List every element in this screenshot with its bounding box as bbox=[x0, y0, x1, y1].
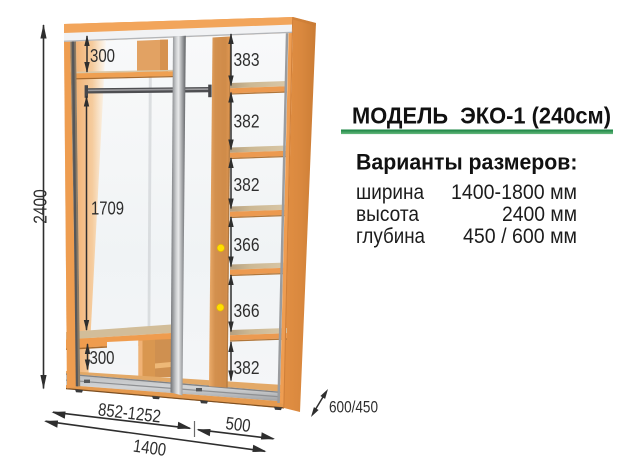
svg-text:600/450: 600/450 bbox=[329, 397, 378, 416]
svg-text:1400-1800 мм: 1400-1800 мм bbox=[451, 181, 577, 204]
svg-text:450 / 600 мм: 450 / 600 мм bbox=[463, 225, 577, 248]
svg-text:366: 366 bbox=[234, 301, 260, 321]
svg-text:ширина: ширина bbox=[356, 181, 424, 204]
svg-text:852-1252: 852-1252 bbox=[97, 399, 162, 426]
svg-text:высота: высота bbox=[356, 203, 419, 226]
svg-text:382: 382 bbox=[234, 112, 260, 132]
svg-text:2400: 2400 bbox=[31, 189, 51, 224]
svg-text:глубина: глубина bbox=[356, 225, 425, 248]
svg-text:500: 500 bbox=[225, 413, 252, 436]
svg-text:382: 382 bbox=[234, 358, 260, 378]
svg-text:МОДЕЛЬ ЭКО-1 (240см): МОДЕЛЬ ЭКО-1 (240см) bbox=[352, 103, 611, 129]
svg-text:2400 мм: 2400 мм bbox=[502, 203, 577, 226]
svg-text:382: 382 bbox=[234, 175, 260, 195]
svg-text:383: 383 bbox=[234, 50, 260, 70]
svg-text:Варианты размеров:: Варианты размеров: bbox=[356, 150, 578, 175]
svg-text:1709: 1709 bbox=[91, 199, 124, 219]
svg-text:366: 366 bbox=[234, 235, 260, 255]
svg-text:1400: 1400 bbox=[132, 436, 167, 460]
svg-text:300: 300 bbox=[90, 46, 115, 66]
svg-text:300: 300 bbox=[90, 348, 115, 368]
